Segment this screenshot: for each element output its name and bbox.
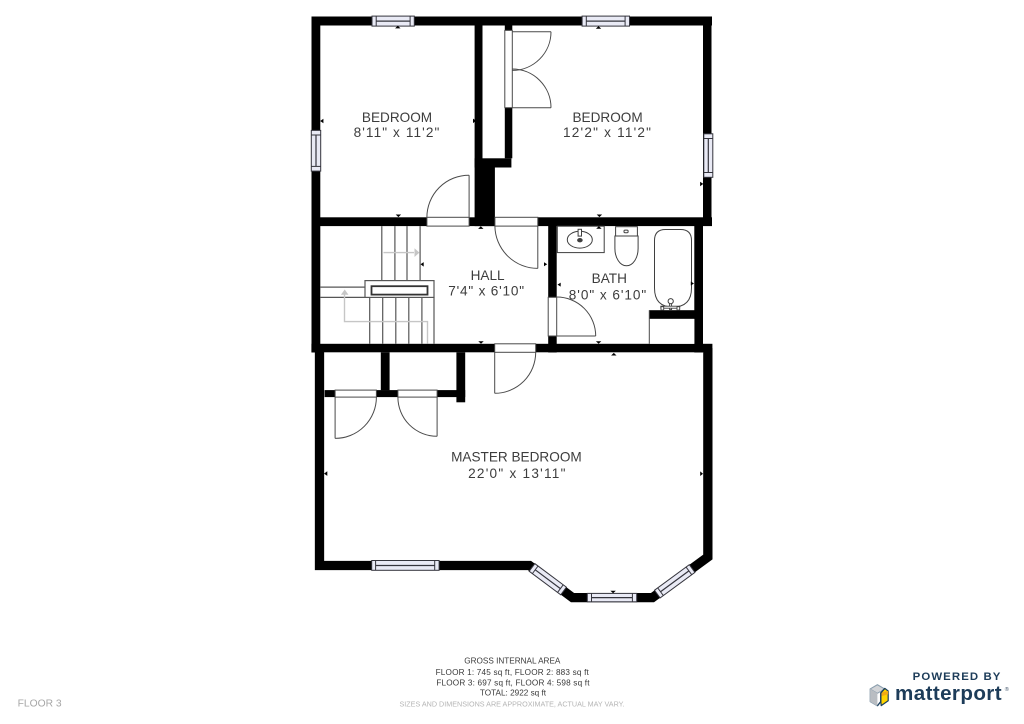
svg-text:BATH: BATH bbox=[592, 271, 627, 286]
svg-text:®: ® bbox=[1005, 686, 1010, 693]
svg-text:8'0" x 6'10": 8'0" x 6'10" bbox=[569, 287, 647, 302]
svg-text:TOTAL: 2922 sq ft: TOTAL: 2922 sq ft bbox=[480, 689, 547, 698]
svg-text:22'0" x 13'11": 22'0" x 13'11" bbox=[468, 466, 567, 481]
svg-text:matterport: matterport bbox=[895, 682, 1002, 705]
svg-text:BEDROOM: BEDROOM bbox=[572, 110, 642, 125]
svg-text:SIZES AND DIMENSIONS ARE APPRO: SIZES AND DIMENSIONS ARE APPROXIMATE, AC… bbox=[400, 699, 625, 708]
svg-text:12'2" x 11'2": 12'2" x 11'2" bbox=[563, 125, 652, 140]
svg-text:FLOOR 3: FLOOR 3 bbox=[18, 699, 62, 710]
svg-text:FLOOR 3: 697 sq ft, FLOOR 4: 5: FLOOR 3: 697 sq ft, FLOOR 4: 598 sq ft bbox=[436, 679, 590, 688]
svg-text:BEDROOM: BEDROOM bbox=[362, 110, 432, 125]
svg-text:MASTER BEDROOM: MASTER BEDROOM bbox=[451, 450, 582, 465]
svg-text:GROSS INTERNAL AREA: GROSS INTERNAL AREA bbox=[464, 657, 561, 666]
svg-text:8'11" x 11'2": 8'11" x 11'2" bbox=[354, 125, 441, 140]
svg-text:HALL: HALL bbox=[471, 268, 505, 283]
svg-text:7'4" x 6'10": 7'4" x 6'10" bbox=[448, 284, 525, 299]
svg-text:FLOOR 1: 745 sq ft, FLOOR 2: 8: FLOOR 1: 745 sq ft, FLOOR 2: 883 sq ft bbox=[436, 668, 590, 677]
